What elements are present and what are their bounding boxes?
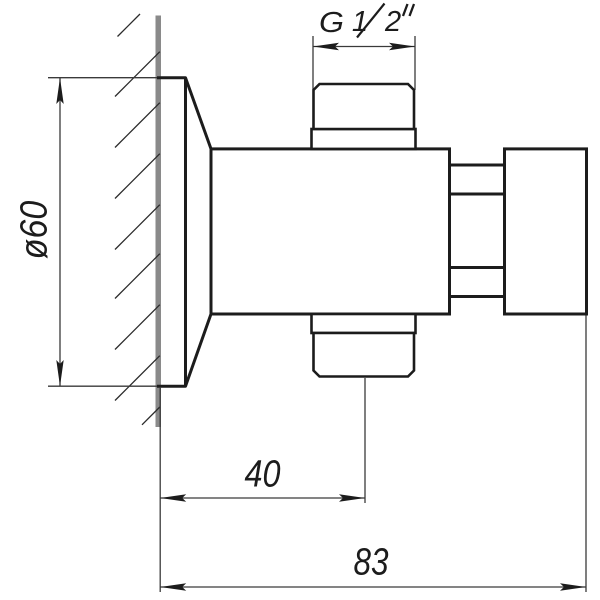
svg-text:83: 83: [354, 542, 389, 584]
svg-text:G: G: [319, 7, 344, 39]
svg-text:2: 2: [384, 6, 401, 38]
svg-text:40: 40: [245, 454, 281, 496]
svg-text:ø60: ø60: [14, 201, 56, 260]
